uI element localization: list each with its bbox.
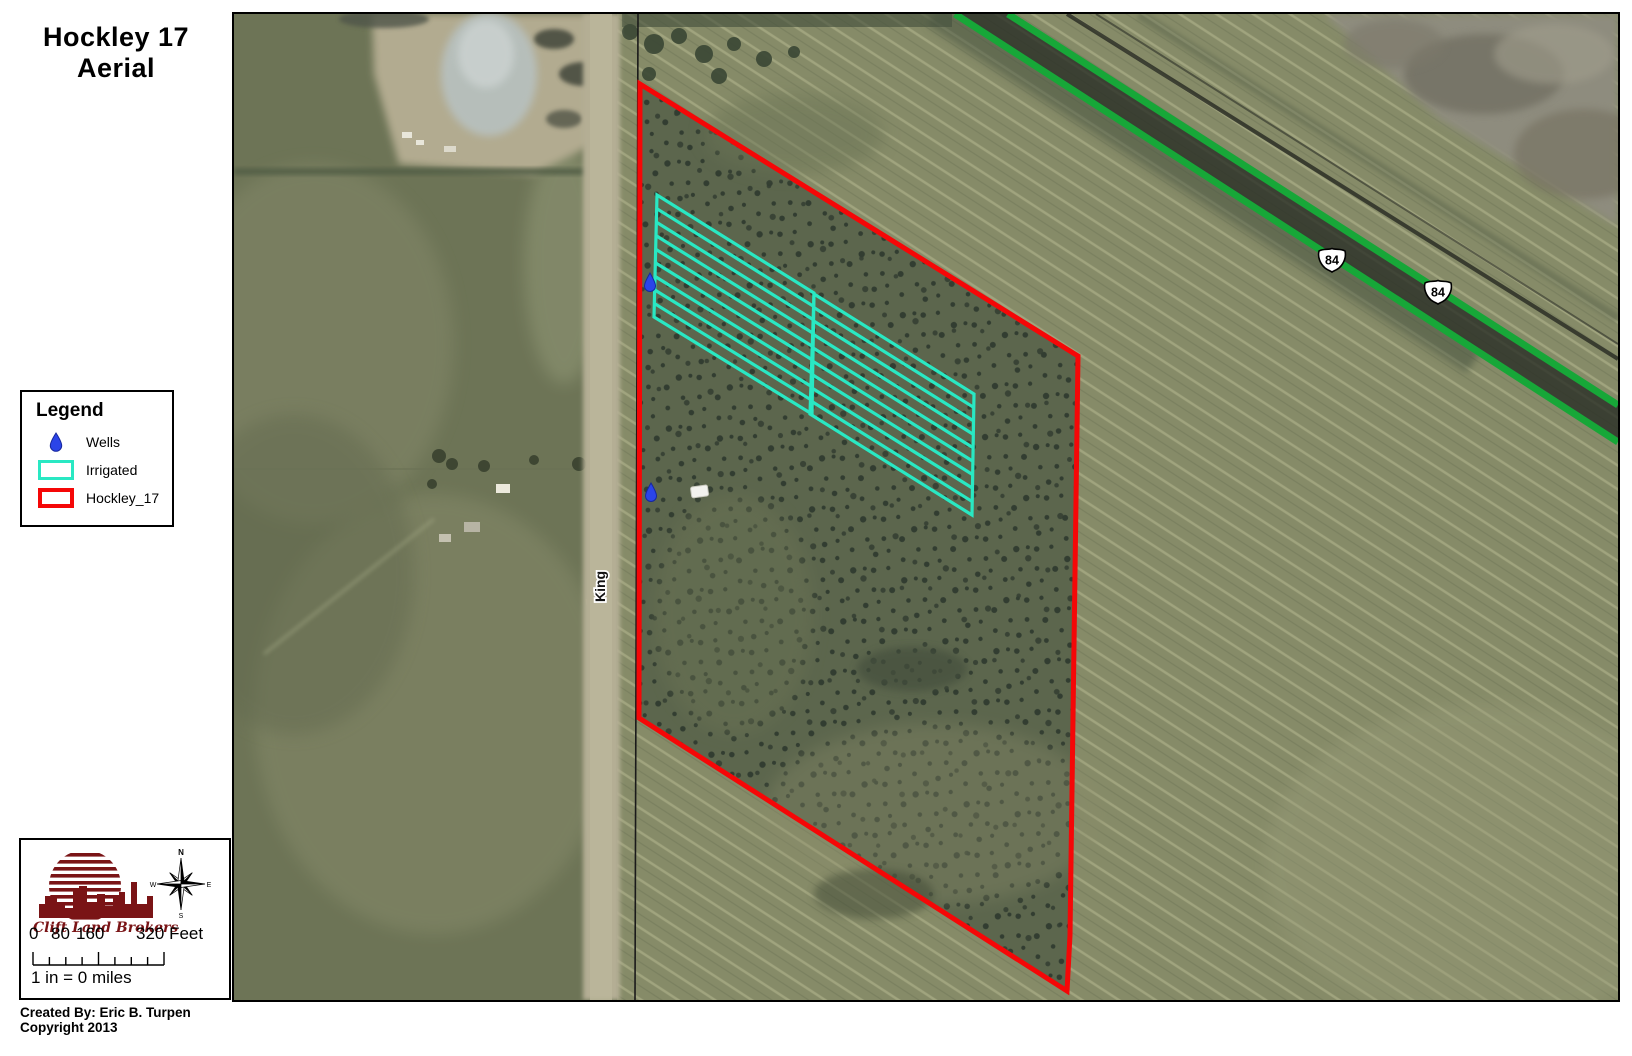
hockley-swatch xyxy=(38,488,74,508)
credits-line1: Created By: Eric B. Turpen xyxy=(20,1005,191,1020)
legend-item-hockley: Hockley_17 xyxy=(36,484,172,512)
legend-label-hockley: Hockley_17 xyxy=(86,490,159,506)
scale-tick-320: 320 Feet xyxy=(136,924,203,944)
scale-equivalence: 1 in = 0 miles xyxy=(31,968,132,988)
title-line1: Hockley 17 xyxy=(0,22,232,53)
legend-item-wells: Wells xyxy=(36,428,172,456)
white-structure xyxy=(690,485,708,498)
compass-s: S xyxy=(179,913,184,918)
compass-e: E xyxy=(207,882,212,889)
irrigated-swatch xyxy=(38,460,74,480)
page: { "title": {"line1": "Hockley 17", "line… xyxy=(0,0,1632,1056)
info-box: Clift Land Brokers N E S W 0 80 160 320 … xyxy=(19,838,231,1000)
company-logo xyxy=(35,846,165,922)
compass-rose: N E S W xyxy=(149,846,213,918)
compass-n: N xyxy=(178,848,184,857)
legend-label-irrigated: Irrigated xyxy=(86,462,137,478)
page-title: Hockley 17 Aerial xyxy=(0,22,232,84)
scale-tick-160: 160 xyxy=(76,924,104,944)
tree-line xyxy=(234,168,612,175)
credits: Created By: Eric B. Turpen Copyright 201… xyxy=(20,1005,191,1035)
legend-title: Legend xyxy=(36,400,172,422)
credits-line2: Copyright 2013 xyxy=(20,1020,191,1035)
legend: Legend Wells Irrigated Hockley_17 xyxy=(20,390,174,527)
shield-label: 84 xyxy=(1325,254,1339,268)
legend-label-wells: Wells xyxy=(86,434,120,450)
title-line2: Aerial xyxy=(0,53,232,84)
scale-tick-0: 0 xyxy=(29,924,38,944)
scale-bar-ruler xyxy=(25,950,185,968)
well-icon xyxy=(36,431,76,453)
shield-label: 84 xyxy=(1431,286,1445,300)
compass-w: W xyxy=(150,882,157,889)
road-label-king: King xyxy=(592,571,608,602)
scale-tick-80: 80 xyxy=(51,924,70,944)
legend-item-irrigated: Irrigated xyxy=(36,456,172,484)
farm-building xyxy=(496,484,510,493)
scale-bar-labels: 0 80 160 320 Feet xyxy=(21,924,229,944)
map-frame: King 84 84 xyxy=(232,12,1620,1002)
aerial-map: King 84 84 xyxy=(234,14,1618,1000)
